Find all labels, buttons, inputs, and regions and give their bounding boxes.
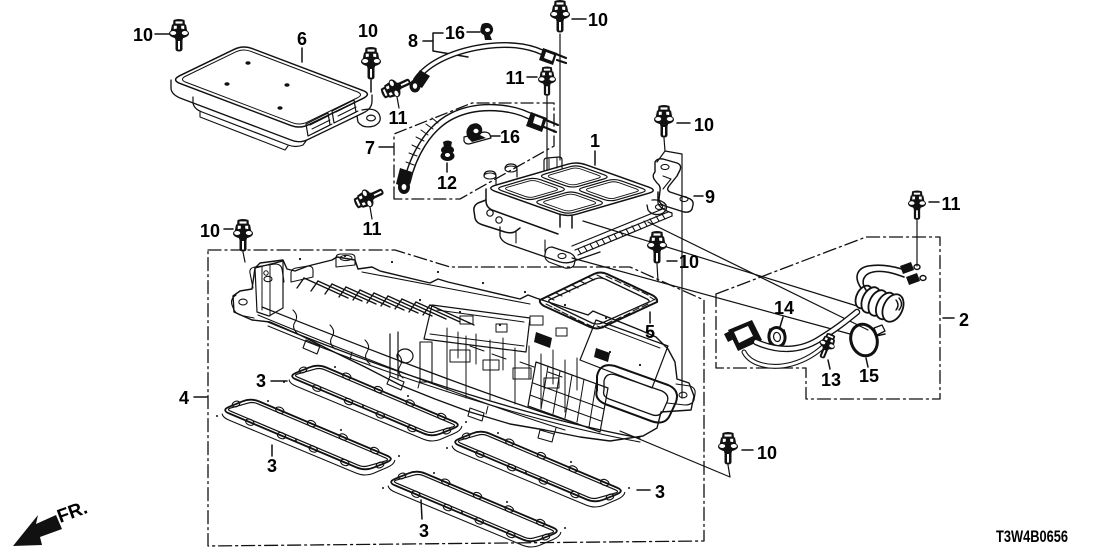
svg-text:14: 14 bbox=[774, 298, 794, 318]
svg-text:3: 3 bbox=[655, 482, 665, 502]
svg-text:6: 6 bbox=[297, 29, 307, 49]
svg-text:3: 3 bbox=[256, 371, 266, 391]
svg-text:10: 10 bbox=[588, 10, 608, 30]
svg-text:4: 4 bbox=[179, 388, 189, 408]
svg-text:10: 10 bbox=[757, 443, 777, 463]
svg-text:T3W4B0656: T3W4B0656 bbox=[996, 527, 1068, 546]
svg-text:8: 8 bbox=[408, 31, 418, 51]
svg-text:10: 10 bbox=[133, 25, 153, 45]
svg-text:10: 10 bbox=[200, 221, 220, 241]
svg-text:10: 10 bbox=[358, 21, 378, 41]
svg-text:3: 3 bbox=[267, 456, 277, 476]
svg-text:16: 16 bbox=[445, 23, 465, 43]
svg-text:10: 10 bbox=[679, 252, 699, 272]
svg-text:12: 12 bbox=[437, 173, 457, 193]
svg-text:13: 13 bbox=[821, 370, 841, 390]
svg-text:9: 9 bbox=[705, 187, 715, 207]
svg-text:7: 7 bbox=[365, 138, 375, 158]
svg-text:2: 2 bbox=[959, 310, 969, 330]
svg-text:5: 5 bbox=[645, 322, 655, 342]
svg-text:16: 16 bbox=[500, 127, 520, 147]
svg-text:11: 11 bbox=[941, 194, 960, 214]
svg-text:10: 10 bbox=[694, 115, 714, 135]
svg-text:11: 11 bbox=[362, 219, 381, 239]
svg-text:11: 11 bbox=[505, 68, 524, 88]
svg-text:3: 3 bbox=[419, 521, 429, 541]
svg-text:11: 11 bbox=[388, 108, 407, 128]
svg-text:1: 1 bbox=[590, 131, 600, 151]
svg-text:15: 15 bbox=[859, 366, 879, 386]
